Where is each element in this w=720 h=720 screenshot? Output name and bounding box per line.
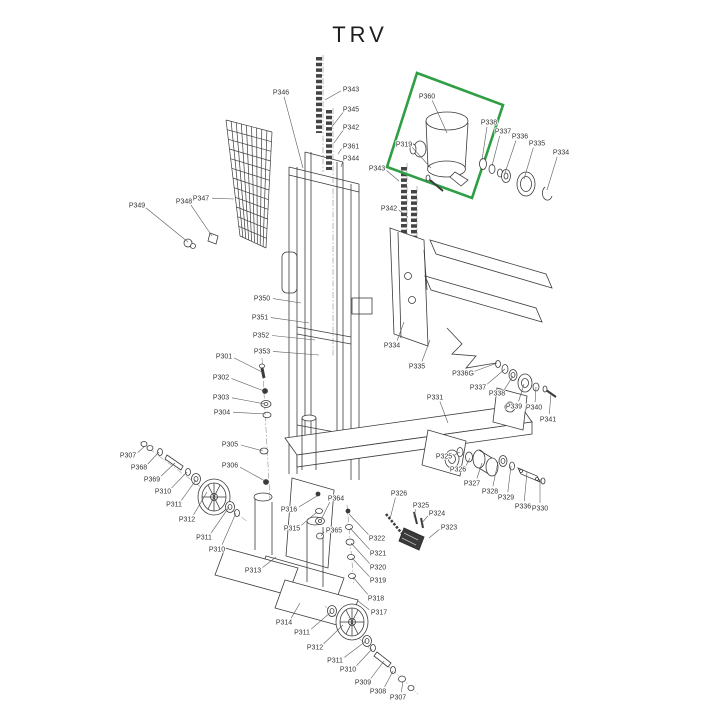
leader-line [429,529,439,538]
part-label: P315 [284,526,300,533]
part-label: P311 [166,502,182,509]
part-label: P361 [343,144,359,151]
part-label: P334 [553,150,569,157]
leader-line [138,446,145,453]
part-label: P304 [214,410,230,417]
part-label: P339 [506,404,522,411]
part-label: P321 [370,551,386,558]
leader-line [349,514,369,535]
leader-line [241,445,263,451]
part-label: P326 [450,467,466,474]
part-label: P314 [276,620,292,627]
part-label: P311 [327,658,343,665]
part-label: P344 [343,156,359,163]
part-label: P308 [370,689,386,696]
grid-line [231,159,270,171]
part-label: P340 [526,405,542,412]
part-label: P343 [369,166,385,173]
part-label: P338 [489,391,505,398]
part-label: P336 [515,504,531,511]
leader-line [240,467,265,481]
part-label: P360 [419,94,435,101]
leader-line [325,91,341,100]
part-label: P326 [391,491,407,498]
leader-line [351,543,370,564]
part-label: P345 [343,107,359,114]
part-label: P327 [464,481,480,488]
part-label: P342 [381,206,397,213]
part-label: P365 [326,528,342,535]
leader-line [385,671,393,687]
leader-line [350,528,370,550]
grid-line [227,130,271,142]
leader-line [232,398,265,404]
leader-line [474,363,497,372]
part-label: P310 [155,489,171,496]
leader-line [234,358,262,372]
leader-line [357,649,373,666]
piston-hardware-chain [480,159,553,201]
part-label: P330 [532,506,548,513]
part-label: P346 [273,90,289,97]
leader-line [146,208,188,242]
part-label: P335 [409,364,425,371]
load-backrest-grid [226,120,272,248]
leader-line [172,472,187,488]
part-label: P313 [245,568,261,575]
part-label: P301 [216,354,232,361]
leader-line [401,681,403,692]
leader-line [181,480,196,500]
part-label: P307 [120,453,136,460]
part-label: P323 [441,525,457,532]
leader-line [344,641,366,657]
leader-line [232,379,265,392]
leader-line [487,369,505,384]
grid-line [233,178,269,190]
part-label: P335 [529,141,545,148]
part-label: P364 [328,496,344,503]
grid-line [228,139,271,151]
leader-line [271,318,309,323]
diagram-page: TRV [0,0,720,720]
leader-line [353,577,368,595]
grid-line [232,168,270,180]
exploded-parts-diagram: P346P343P345P342P361P344P349P348P347P360… [0,0,720,720]
part-label: P312 [307,645,323,652]
leader-line [148,452,159,464]
part-label: P317 [371,610,387,617]
part-label: P318 [368,596,384,603]
grid-line [230,149,271,161]
part-label: P334 [384,343,400,350]
part-label: P329 [498,495,514,502]
leader-line [371,661,384,679]
part-label: P341 [540,417,556,424]
part-label: P319 [370,578,386,585]
part-label: P342 [343,125,359,132]
part-label: P369 [144,477,160,484]
part-label: P306 [222,463,238,470]
leader-line [390,498,395,519]
part-label: P307 [390,695,406,702]
part-label: P320 [370,565,386,572]
leader-line [505,376,514,389]
leader-line [212,198,234,199]
part-label: P325 [436,454,452,461]
bottom-wheel-assembly [325,604,418,694]
part-label: P302 [213,375,229,382]
part-label: P353 [254,349,270,356]
part-label: P349 [129,203,145,210]
part-label: P351 [252,315,268,322]
grid-line [226,120,272,132]
part-label: P348 [176,199,192,206]
leader-line [547,157,557,190]
part-label: P337 [470,385,486,392]
part-label: P343 [343,87,359,94]
leader-line [284,97,303,168]
grid-line [235,197,268,209]
part-label: P310 [340,667,356,674]
part-label: P311 [294,630,310,637]
grid-line [234,188,268,200]
leader-line [191,205,212,236]
part-label: P350 [254,296,270,303]
pedal-group [386,512,424,550]
part-label: P310 [209,547,225,554]
part-label: P328 [482,489,498,496]
part-label: P324 [429,511,445,518]
part-label: P352 [253,333,269,340]
leader-line [549,394,551,414]
leader-line [334,130,343,143]
part-label: P322 [369,536,385,543]
leader-line [273,351,319,355]
leader-line [222,513,236,545]
part-label: P337 [495,129,511,136]
part-label: P336G [452,371,474,378]
part-label: P347 [193,196,209,203]
part-label: P331 [427,395,443,402]
leader-line [492,136,500,166]
part-label: P312 [179,517,195,524]
pump-cylinder-chain [457,448,545,485]
grid-line [240,236,266,248]
part-label: P303 [213,395,229,402]
part-label: P316 [281,507,297,514]
fork-carriage [390,228,552,368]
leader-line [338,149,342,154]
part-label: P319 [396,142,412,149]
part-label: P338 [481,120,497,127]
backrest-hardware [184,233,218,249]
leader-line [161,463,175,476]
leader-line [505,141,516,173]
part-label: P368 [131,465,147,472]
part-label: P325 [413,503,429,510]
part-label: P336 [512,134,528,141]
part-label: P311 [196,535,212,542]
part-label: P309 [355,680,371,687]
leader-line [508,466,511,492]
part-label: P305 [222,442,238,449]
leader-line [233,412,266,414]
